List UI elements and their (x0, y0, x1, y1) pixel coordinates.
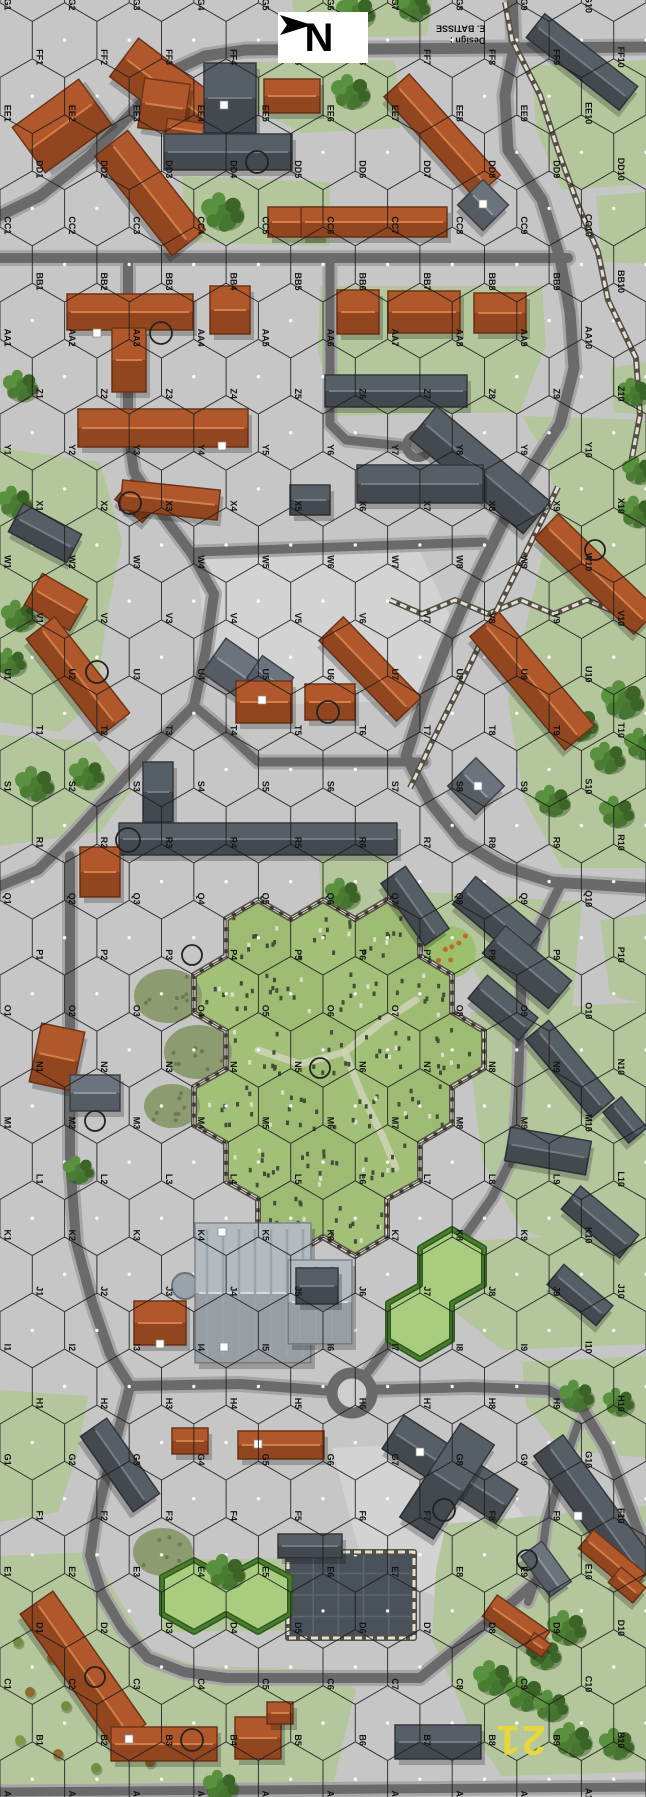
hex-label: DD1 (35, 160, 45, 178)
hex-label: O4 (196, 1005, 206, 1017)
hex-label: J1 (35, 1286, 45, 1296)
hex-label: P6 (358, 949, 368, 960)
white-square-marker (218, 1228, 226, 1236)
hex-label: T7 (422, 725, 432, 736)
hex-label: S4 (196, 781, 206, 792)
hex-label: A10 (584, 1788, 594, 1797)
white-square-marker (220, 1343, 228, 1351)
hex-label: GG10 (584, 0, 594, 13)
hex-label: G2 (67, 1454, 77, 1466)
hex-label: J8 (487, 1286, 497, 1296)
hex-label: AA9 (519, 329, 529, 347)
hex-label: X7 (422, 500, 432, 511)
hex-label: Q5 (261, 893, 271, 905)
hex-label: Z2 (99, 388, 109, 399)
building (143, 762, 177, 828)
hex-label: EE7 (390, 105, 400, 122)
building (305, 684, 359, 726)
hex-label: S1 (2, 781, 12, 792)
hex-label: BB8 (487, 272, 497, 290)
hex-label: S7 (390, 781, 400, 792)
hex-label: Y2 (67, 444, 77, 455)
hex-label: Q2 (67, 893, 77, 905)
hex-label: X6 (358, 500, 368, 511)
hex-label: EE6 (325, 105, 335, 122)
hex-label: D8 (487, 1622, 497, 1634)
building (264, 79, 324, 119)
hex-label: K3 (132, 1229, 142, 1241)
hex-label: C3 (132, 1678, 142, 1690)
hex-label: BB10 (616, 270, 626, 293)
hex-label: CC4 (196, 216, 206, 234)
hex-label: R1 (35, 837, 45, 849)
hex-label: I1 (2, 1344, 12, 1352)
hex-label: BB9 (551, 272, 561, 290)
hex-label: M2 (67, 1117, 77, 1130)
hex-label: R2 (99, 837, 109, 849)
hex-label: AA7 (390, 329, 400, 347)
hex-label: O6 (325, 1005, 335, 1017)
hex-label: G4 (196, 1454, 206, 1466)
hex-label: K8 (455, 1229, 465, 1241)
hex-label: A5 (261, 1790, 271, 1797)
hex-label: Q9 (519, 893, 529, 905)
hex-label: GG5 (261, 0, 271, 11)
hex-label: W2 (67, 555, 77, 569)
hex-label: P2 (99, 949, 109, 960)
hex-label: T8 (487, 725, 497, 736)
hex-label: B4 (228, 1734, 238, 1746)
hex-label: CC9 (519, 216, 529, 234)
hex-label: G5 (261, 1454, 271, 1466)
hex-label: T3 (164, 725, 174, 736)
hex-label: C1 (2, 1678, 12, 1690)
hex-label: AA6 (325, 329, 335, 347)
hex-label: F5 (293, 1510, 303, 1521)
hex-label: H8 (487, 1398, 497, 1410)
hex-label: Z1 (35, 388, 45, 399)
hex-label: V5 (293, 613, 303, 624)
hex-label: N4 (228, 1061, 238, 1073)
hex-label: O7 (390, 1005, 400, 1017)
hex-label: Y4 (196, 444, 206, 455)
designer-credit: Design : E. BATISSE (436, 22, 485, 45)
hex-label: U8 (455, 668, 465, 680)
hex-label: W10 (584, 553, 594, 572)
hex-label: DD8 (487, 160, 497, 178)
hex-label: M5 (261, 1117, 271, 1130)
hex-label: N8 (487, 1061, 497, 1073)
hex-label: T5 (293, 725, 303, 736)
hex-label: F1 (35, 1510, 45, 1521)
hex-label: CC2 (67, 216, 77, 234)
hex-label: M6 (325, 1117, 335, 1130)
building (267, 1702, 297, 1730)
hex-label: AA5 (261, 329, 271, 347)
hex-label: F2 (99, 1510, 109, 1521)
hex-label: GG2 (67, 0, 77, 11)
hex-label: D3 (164, 1622, 174, 1634)
white-square-marker (479, 200, 487, 208)
hex-label: F10 (616, 1508, 626, 1524)
hex-label: Y5 (261, 444, 271, 455)
hex-label: W4 (196, 555, 206, 569)
hex-label: V8 (487, 613, 497, 624)
hex-label: O1 (2, 1005, 12, 1017)
hex-label: R6 (358, 837, 368, 849)
hex-label: U2 (67, 668, 77, 680)
hex-label: V2 (99, 613, 109, 624)
hex-label: I10 (584, 1341, 594, 1354)
hex-label: Y8 (455, 444, 465, 455)
hex-label: CC6 (325, 216, 335, 234)
hex-label: N1 (35, 1061, 45, 1073)
hex-label: BB1 (35, 272, 45, 290)
hex-label: P7 (422, 949, 432, 960)
building (236, 681, 296, 729)
hex-label: FF7 (422, 49, 432, 65)
hex-label: N2 (99, 1061, 109, 1073)
hex-label: R5 (293, 837, 303, 849)
hex-label: N9 (551, 1061, 561, 1073)
hex-label: K7 (390, 1229, 400, 1241)
hex-label: K4 (196, 1229, 206, 1241)
building (395, 1725, 485, 1765)
hex-label: DD6 (358, 160, 368, 178)
hex-label: K10 (584, 1227, 594, 1244)
hex-label: S3 (132, 781, 142, 792)
hex-label: FF3 (164, 49, 174, 65)
hex-label: EE9 (519, 105, 529, 122)
hex-label: B7 (422, 1734, 432, 1746)
hex-label: E5 (261, 1566, 271, 1577)
board-canvas: GG1GG2GG3GG4GG5GG6GG7GG8GG9GG10FF1FF2FF3… (0, 0, 646, 1797)
hex-label: E8 (455, 1566, 465, 1577)
hex-label: J7 (422, 1286, 432, 1296)
hex-label: X8 (487, 500, 497, 511)
hex-label: W1 (2, 555, 12, 569)
hex-label: U6 (325, 668, 335, 680)
hex-label: GG9 (519, 0, 529, 11)
hex-label: DD3 (164, 160, 174, 178)
hex-label: K1 (2, 1229, 12, 1241)
hex-label: CC5 (261, 216, 271, 234)
hex-label: X10 (616, 498, 626, 514)
hex-label: CC1 (2, 216, 12, 234)
hex-label: O3 (132, 1005, 142, 1017)
hex-label: FF8 (487, 49, 497, 65)
hex-label: Y3 (132, 444, 142, 455)
hex-label: K2 (67, 1229, 77, 1241)
hex-label: S6 (325, 781, 335, 792)
hex-label: Y10 (584, 442, 594, 458)
hex-label: U3 (132, 668, 142, 680)
hex-label: W8 (455, 555, 465, 569)
hex-label: E4 (196, 1566, 206, 1577)
hex-label: CC3 (132, 216, 142, 234)
hex-label: G9 (519, 1454, 529, 1466)
hex-label: P5 (293, 949, 303, 960)
building (238, 1431, 328, 1465)
hex-label: W7 (390, 555, 400, 569)
hex-label: FF2 (99, 49, 109, 65)
hex-label: R3 (164, 837, 174, 849)
hex-label: AA1 (2, 329, 12, 347)
hex-label: O9 (519, 1005, 529, 1017)
hex-label: V9 (551, 613, 561, 624)
hex-label: T1 (35, 725, 45, 736)
hex-label: S2 (67, 781, 77, 792)
hex-label: P10 (616, 947, 626, 963)
hex-label: L8 (487, 1174, 497, 1185)
white-square-marker (574, 1512, 582, 1520)
board-number: 21 (488, 1716, 552, 1764)
hex-label: S10 (584, 778, 594, 794)
hex-label: L1 (35, 1174, 45, 1185)
hex-label: B3 (164, 1734, 174, 1746)
hex-label: R10 (616, 834, 626, 851)
designer-credit-label: Design : (436, 34, 485, 46)
hex-label: Z7 (422, 388, 432, 399)
hex-label: AA4 (196, 329, 206, 347)
hex-label: GG1 (2, 0, 12, 11)
hex-label: V6 (358, 613, 368, 624)
hex-label: I4 (196, 1344, 206, 1352)
hex-label: H10 (616, 1395, 626, 1412)
hex-label: B2 (99, 1734, 109, 1746)
hex-label: T4 (228, 725, 238, 736)
hex-label: J10 (616, 1284, 626, 1299)
hex-label: C7 (390, 1678, 400, 1690)
hex-label: Z9 (551, 388, 561, 399)
hex-label: N10 (616, 1059, 626, 1076)
hex-label: EE8 (455, 105, 465, 122)
hex-label: GG4 (196, 0, 206, 11)
hex-label: DD4 (228, 160, 238, 178)
hex-label: D4 (228, 1622, 238, 1634)
hex-label: F7 (422, 1510, 432, 1521)
hex-label: BB5 (293, 272, 303, 290)
building (357, 465, 487, 509)
building (80, 847, 124, 903)
hex-label: U9 (519, 668, 529, 680)
hex-label: E9 (519, 1566, 529, 1577)
hex-label: D1 (35, 1622, 45, 1634)
hex-label: GG8 (455, 0, 465, 11)
hex-label: M3 (132, 1117, 142, 1130)
hex-label: Y6 (325, 444, 335, 455)
hex-label: P8 (487, 949, 497, 960)
building (210, 286, 254, 340)
hex-label: Z3 (164, 388, 174, 399)
hex-label: Z4 (228, 388, 238, 399)
hex-label: P1 (35, 949, 45, 960)
hex-label: R4 (228, 837, 238, 849)
hex-label: A4 (196, 1790, 206, 1797)
hex-label: L10 (616, 1171, 626, 1187)
hex-label: N6 (358, 1061, 368, 1073)
hex-label: D6 (358, 1622, 368, 1634)
hex-label: G7 (390, 1454, 400, 1466)
hex-label: W3 (132, 555, 142, 569)
hex-label: Q3 (132, 893, 142, 905)
hex-label: L9 (551, 1174, 561, 1185)
hex-label: I2 (67, 1344, 77, 1352)
hex-label: GG6 (325, 0, 335, 11)
hex-label: CC8 (455, 216, 465, 234)
white-square-marker (220, 101, 228, 109)
hex-label: Z5 (293, 388, 303, 399)
building (278, 1534, 346, 1564)
white-square-marker (93, 329, 101, 337)
hex-label: M9 (519, 1117, 529, 1130)
hex-label: H5 (293, 1398, 303, 1410)
hex-label: Q6 (325, 893, 335, 905)
hex-label: T9 (551, 725, 561, 736)
hex-label: M1 (2, 1117, 12, 1130)
north-indicator: N (278, 12, 368, 63)
hex-label: C4 (196, 1678, 206, 1690)
hex-label: N3 (164, 1061, 174, 1073)
hex-label: Y9 (519, 444, 529, 455)
hex-label: E2 (67, 1566, 77, 1577)
hex-label: D5 (293, 1622, 303, 1634)
hex-label: X4 (228, 500, 238, 511)
hex-label: GG7 (390, 0, 400, 11)
hex-label: W6 (325, 555, 335, 569)
hex-label: BB7 (422, 272, 432, 290)
hex-label: B9 (551, 1734, 561, 1746)
hex-label: Z8 (487, 388, 497, 399)
hex-label: U10 (584, 666, 594, 683)
hex-label: B1 (35, 1734, 45, 1746)
hex-label: O2 (67, 1005, 77, 1017)
hex-label: U5 (261, 668, 271, 680)
hex-label: O5 (261, 1005, 271, 1017)
hex-label: FF10 (616, 47, 626, 68)
hex-label: H7 (422, 1398, 432, 1410)
hex-label: A2 (67, 1790, 77, 1797)
hex-label: T2 (99, 725, 109, 736)
hex-label: W9 (519, 555, 529, 569)
hex-label: DD5 (293, 160, 303, 178)
designer-credit-name: E. BATISSE (436, 22, 485, 34)
hex-label: G1 (2, 1454, 12, 1466)
hex-label: X2 (99, 500, 109, 511)
white-square-marker (125, 1735, 133, 1743)
hex-label: L5 (293, 1174, 303, 1185)
hex-label: S8 (455, 781, 465, 792)
hex-label: R9 (551, 837, 561, 849)
hex-label: EE2 (67, 105, 77, 122)
hex-label: R7 (422, 837, 432, 849)
hex-label: X1 (35, 500, 45, 511)
hex-label: Y1 (2, 444, 12, 455)
hex-label: G10 (584, 1451, 594, 1468)
hex-label: AA10 (584, 326, 594, 349)
hex-label: P9 (551, 949, 561, 960)
layer-yard (288, 1552, 414, 1638)
building (112, 328, 150, 398)
hex-label: B10 (616, 1732, 626, 1749)
hex-label: I5 (261, 1344, 271, 1352)
hex-label: H3 (164, 1398, 174, 1410)
hex-label: J5 (293, 1286, 303, 1296)
hex-label: O8 (455, 1005, 465, 1017)
hex-label: G8 (455, 1454, 465, 1466)
hex-label: E6 (325, 1566, 335, 1577)
hex-label: G3 (132, 1454, 142, 1466)
hex-label: GG3 (132, 0, 142, 11)
building (337, 290, 383, 340)
hex-label: BB4 (228, 272, 238, 290)
hex-label: Z10 (616, 386, 626, 402)
hex-label: M7 (390, 1117, 400, 1130)
hex-label: H2 (99, 1398, 109, 1410)
hex-label: H4 (228, 1398, 238, 1410)
hex-label: B5 (293, 1734, 303, 1746)
hex-label: D2 (99, 1622, 109, 1634)
hex-label: J6 (358, 1286, 368, 1296)
hex-label: I3 (132, 1344, 142, 1352)
hex-label: E1 (2, 1566, 12, 1577)
white-square-marker (474, 782, 482, 790)
hex-label: V1 (35, 613, 45, 624)
hex-label: F6 (358, 1510, 368, 1521)
hex-label: EE1 (2, 105, 12, 122)
hex-label: DD10 (616, 158, 626, 181)
hex-label: A3 (132, 1790, 142, 1797)
hex-label: H1 (35, 1398, 45, 1410)
building (111, 1727, 221, 1767)
hex-label: G6 (325, 1454, 335, 1466)
white-square-marker (258, 696, 266, 704)
hex-label: I9 (519, 1344, 529, 1352)
hex-label: L2 (99, 1174, 109, 1185)
hex-label: C8 (455, 1678, 465, 1690)
hex-label: J9 (551, 1286, 561, 1296)
hex-label: EE3 (132, 105, 142, 122)
hex-label: Q4 (196, 893, 206, 905)
hex-label: D9 (551, 1622, 561, 1634)
hex-label: I8 (455, 1344, 465, 1352)
hex-label: CC7 (390, 216, 400, 234)
hex-label: Q8 (455, 893, 465, 905)
hex-label: FF9 (551, 49, 561, 65)
hex-label: K6 (325, 1229, 335, 1241)
hex-label: V4 (228, 613, 238, 624)
hex-label: H6 (358, 1398, 368, 1410)
hex-label: J2 (99, 1286, 109, 1296)
hex-label: B6 (358, 1734, 368, 1746)
hex-label: W5 (261, 555, 271, 569)
hex-label: C5 (261, 1678, 271, 1690)
hex-label: V7 (422, 613, 432, 624)
hex-label: Q10 (584, 890, 594, 907)
map-board: GG1GG2GG3GG4GG5GG6GG7GG8GG9GG10FF1FF2FF3… (0, 0, 646, 1797)
hex-label: BB2 (99, 272, 109, 290)
hex-label: Q7 (390, 893, 400, 905)
hex-label: S5 (261, 781, 271, 792)
hex-label: C9 (519, 1678, 529, 1690)
hex-label: D7 (422, 1622, 432, 1634)
white-square-marker (416, 1448, 424, 1456)
hex-label: F4 (228, 1510, 238, 1521)
hex-label: F8 (487, 1510, 497, 1521)
hex-label: D10 (616, 1620, 626, 1637)
hex-label: H9 (551, 1398, 561, 1410)
hex-label: L7 (422, 1174, 432, 1185)
